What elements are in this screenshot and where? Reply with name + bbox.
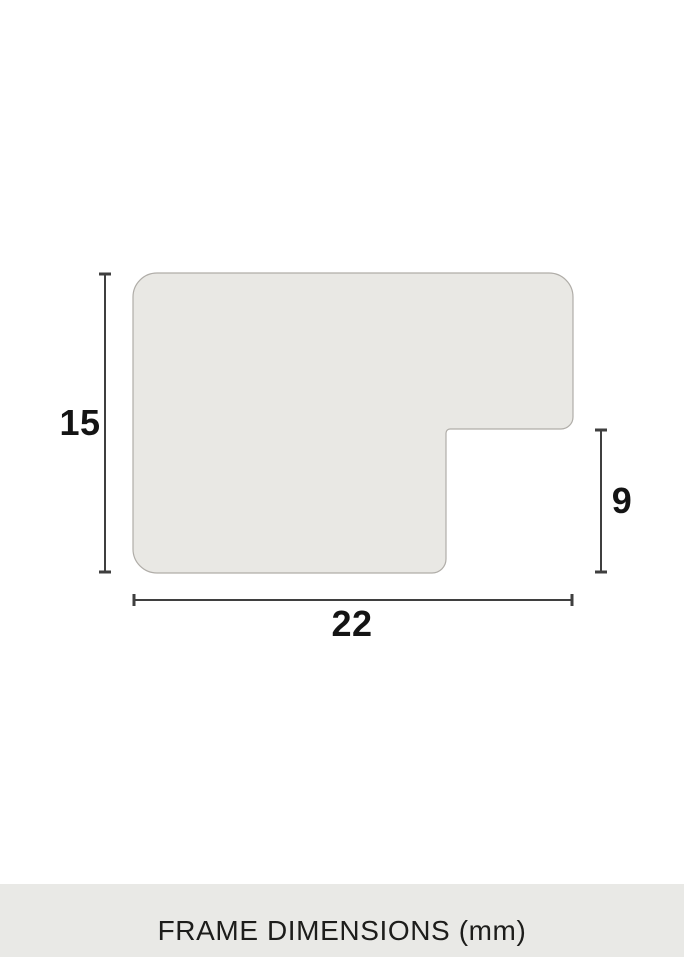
frame-profile-diagram: 15 9 22 bbox=[0, 0, 684, 957]
frame-cross-section-svg bbox=[0, 0, 684, 957]
width-dimension-label: 22 bbox=[331, 606, 372, 642]
dimension-line-height bbox=[99, 274, 111, 572]
height-dimension-label: 15 bbox=[59, 405, 100, 441]
frame-profile-shape bbox=[133, 273, 573, 573]
caption-text: FRAME DIMENSIONS (mm) bbox=[158, 915, 527, 947]
depth-dimension-label: 9 bbox=[612, 483, 633, 519]
frame-dimensions-screenshot: 15 9 22 FRAME DIMENSIONS (mm) bbox=[0, 0, 684, 957]
caption-band: FRAME DIMENSIONS (mm) bbox=[0, 884, 684, 957]
dimension-line-depth bbox=[595, 430, 607, 572]
